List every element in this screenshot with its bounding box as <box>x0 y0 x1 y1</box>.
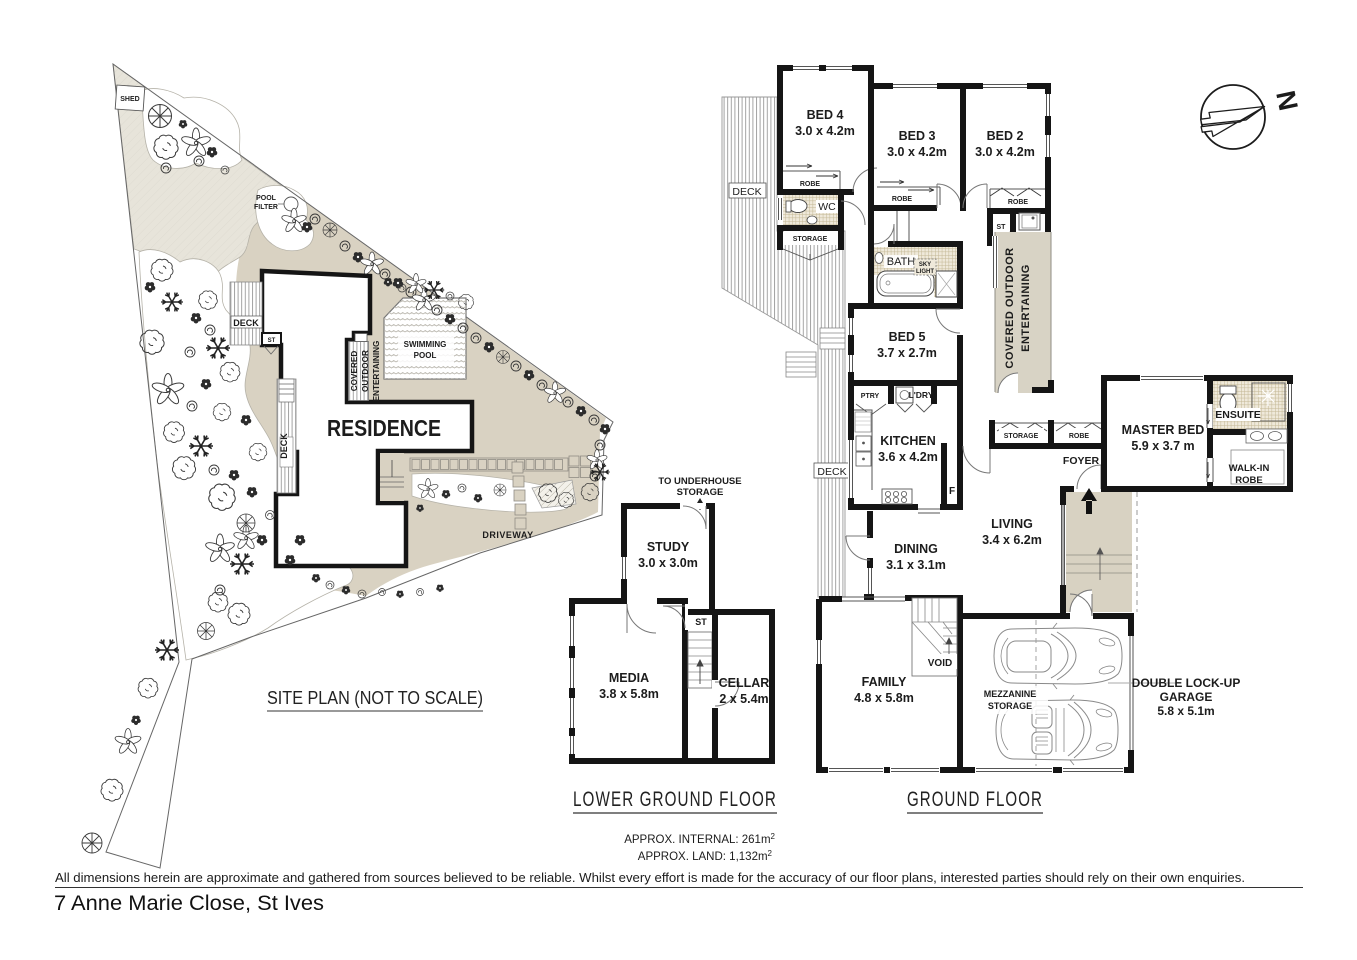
svg-text:SHED: SHED <box>120 96 139 103</box>
svg-text:PTRY: PTRY <box>861 393 880 400</box>
svg-text:RESIDENCE: RESIDENCE <box>327 415 441 441</box>
svg-text:3.7 x 2.7m: 3.7 x 2.7m <box>877 346 937 360</box>
svg-text:LIVING: LIVING <box>991 517 1033 531</box>
svg-text:WALK-IN: WALK-IN <box>1229 463 1270 474</box>
svg-text:BATH: BATH <box>887 256 916 268</box>
svg-text:LOWER GROUND FLOOR: LOWER GROUND FLOOR <box>573 788 777 811</box>
svg-text:WC: WC <box>818 201 836 213</box>
svg-text:POOL: POOL <box>414 351 437 360</box>
svg-text:STORAGE: STORAGE <box>793 236 828 243</box>
svg-text:DOUBLE LOCK-UP: DOUBLE LOCK-UP <box>1132 676 1241 690</box>
svg-text:POOL: POOL <box>256 195 277 202</box>
svg-text:3.0 x 4.2m: 3.0 x 4.2m <box>887 145 947 159</box>
svg-text:APPROX. LAND: 1,132m2: APPROX. LAND: 1,132m2 <box>638 849 773 863</box>
svg-text:DECK: DECK <box>233 318 259 328</box>
svg-text:DECK: DECK <box>279 433 289 459</box>
svg-text:3.1 x 3.1m: 3.1 x 3.1m <box>886 558 946 572</box>
svg-text:SKY: SKY <box>919 262 931 268</box>
svg-text:BED 5: BED 5 <box>889 330 926 344</box>
svg-text:BED 4: BED 4 <box>807 108 844 122</box>
svg-text:5.8 x 5.1m: 5.8 x 5.1m <box>1157 704 1214 718</box>
svg-text:KITCHEN: KITCHEN <box>880 434 936 448</box>
svg-text:3.8 x 5.8m: 3.8 x 5.8m <box>599 687 659 701</box>
svg-text:ROBE: ROBE <box>1235 475 1262 486</box>
svg-text:APPROX. INTERNAL: 261m2: APPROX. INTERNAL: 261m2 <box>624 832 775 846</box>
svg-text:ENTERTAINING: ENTERTAINING <box>1020 264 1032 352</box>
svg-text:SWIMMING: SWIMMING <box>404 340 447 349</box>
svg-text:DECK: DECK <box>817 466 846 478</box>
svg-text:SITE PLAN (NOT TO SCALE): SITE PLAN (NOT TO SCALE) <box>267 688 483 708</box>
svg-text:VOID: VOID <box>928 658 952 669</box>
svg-text:2 x 5.4m: 2 x 5.4m <box>719 692 768 706</box>
svg-text:DECK: DECK <box>732 186 761 198</box>
svg-text:3.0 x 4.2m: 3.0 x 4.2m <box>975 145 1035 159</box>
svg-text:MEZZANINE: MEZZANINE <box>984 689 1037 699</box>
svg-text:MEDIA: MEDIA <box>609 671 649 685</box>
svg-text:ROBE: ROBE <box>800 181 821 188</box>
svg-text:BED 3: BED 3 <box>899 129 936 143</box>
svg-text:ST: ST <box>268 338 276 344</box>
svg-text:FOYER: FOYER <box>1063 455 1100 467</box>
svg-text:3.4 x 6.2m: 3.4 x 6.2m <box>982 533 1042 547</box>
svg-text:DRIVEWAY: DRIVEWAY <box>482 530 533 540</box>
svg-text:5.9 x 3.7 m: 5.9 x 3.7 m <box>1131 439 1194 453</box>
svg-text:ST: ST <box>695 617 707 627</box>
svg-text:FAMILY: FAMILY <box>862 675 907 689</box>
svg-text:ROBE: ROBE <box>892 196 913 203</box>
svg-text:L'DRY: L'DRY <box>909 390 934 400</box>
svg-text:STORAGE: STORAGE <box>677 487 724 498</box>
svg-text:COVERED OUTDOOR: COVERED OUTDOOR <box>1004 247 1016 368</box>
svg-text:7 Anne Marie Close, St Ives: 7 Anne Marie Close, St Ives <box>54 892 324 915</box>
svg-text:ST: ST <box>997 224 1007 231</box>
svg-text:STORAGE: STORAGE <box>1004 433 1039 440</box>
svg-text:ENTERTAINING: ENTERTAINING <box>372 341 381 402</box>
svg-text:OUTDOOR: OUTDOOR <box>361 350 370 392</box>
svg-text:3.0 x 4.2m: 3.0 x 4.2m <box>795 124 855 138</box>
svg-text:COVERED: COVERED <box>350 351 359 392</box>
svg-text:ENSUITE: ENSUITE <box>1215 409 1261 421</box>
svg-text:BED 2: BED 2 <box>987 129 1024 143</box>
svg-text:GROUND FLOOR: GROUND FLOOR <box>907 788 1043 811</box>
svg-text:CELLAR: CELLAR <box>719 676 770 690</box>
svg-text:FILTER: FILTER <box>254 204 278 211</box>
svg-text:MASTER BED: MASTER BED <box>1122 423 1205 437</box>
svg-text:STUDY: STUDY <box>647 540 690 554</box>
svg-text:F: F <box>949 486 955 497</box>
svg-text:GARAGE: GARAGE <box>1160 690 1213 704</box>
svg-text:DINING: DINING <box>894 542 938 556</box>
svg-text:STORAGE: STORAGE <box>988 701 1032 711</box>
svg-text:ROBE: ROBE <box>1069 433 1090 440</box>
svg-text:3.6 x 4.2m: 3.6 x 4.2m <box>878 450 938 464</box>
svg-text:LIGHT: LIGHT <box>916 269 934 275</box>
svg-text:TO UNDERHOUSE: TO UNDERHOUSE <box>658 476 741 487</box>
svg-text:ROBE: ROBE <box>1008 199 1029 206</box>
svg-text:3.0 x 3.0m: 3.0 x 3.0m <box>638 556 698 570</box>
svg-text:4.8 x 5.8m: 4.8 x 5.8m <box>854 691 914 705</box>
svg-text:All dimensions herein are appr: All dimensions herein are approximate an… <box>55 871 1245 885</box>
